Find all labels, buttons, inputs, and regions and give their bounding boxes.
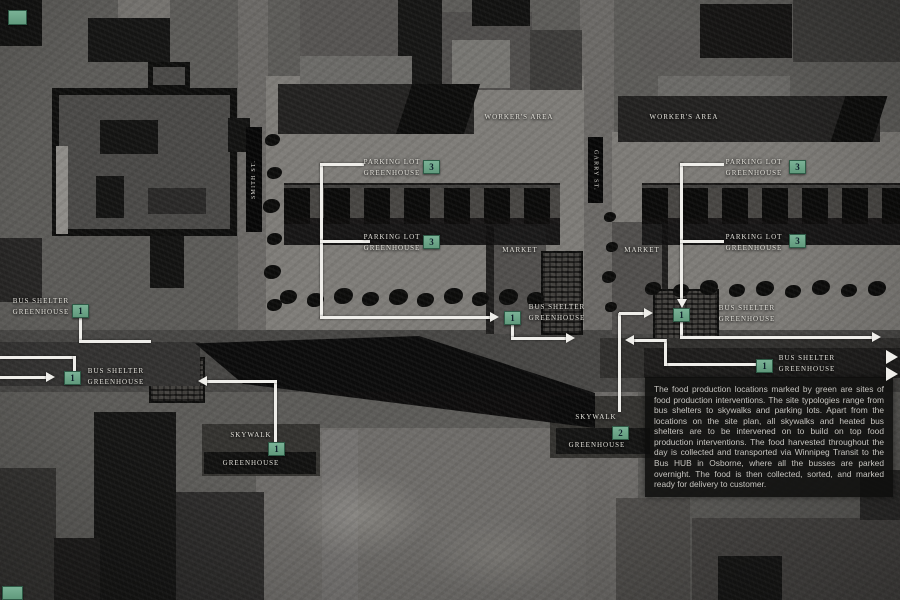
courtyard — [100, 120, 158, 154]
callout-line1: SKYWALK — [230, 430, 271, 441]
garry-street-label: GARRY ST. — [588, 137, 603, 203]
building — [300, 0, 408, 62]
building — [0, 238, 42, 302]
callout-line — [511, 337, 569, 340]
building-courtyard-block — [52, 88, 237, 236]
callout-line2: GREENHOUSE — [13, 307, 70, 318]
callout-line1: PARKING LOT — [364, 157, 421, 168]
badge-bus-shelter-center: 1 — [504, 311, 521, 325]
arrowhead-right — [490, 312, 499, 322]
callout-line2: GREENHOUSE — [726, 168, 783, 179]
callout-line1: BUS SHELTER — [13, 296, 70, 307]
roof-highlight — [452, 40, 510, 88]
callout-skywalk-west-title: SKYWALK — [230, 430, 271, 441]
callout-line1: SKYWALK — [575, 412, 616, 423]
workers-area-label-east: WORKER'S AREA — [650, 112, 719, 123]
callout-line — [664, 339, 667, 366]
callout-line — [680, 163, 683, 299]
badge-bus-shelter-west: 1 — [64, 371, 81, 385]
badge-corner-northwest — [8, 10, 27, 25]
legend-note: The food production locations marked by … — [645, 377, 893, 497]
callout-skywalk-east-title: SKYWALK — [575, 412, 616, 423]
building — [176, 492, 264, 600]
arrowhead-right — [886, 367, 898, 381]
arrowhead-left — [198, 376, 207, 386]
callout-line — [634, 339, 666, 342]
callout-line2: GREENHOUSE — [529, 313, 586, 324]
building — [472, 0, 530, 26]
callout-line — [680, 240, 724, 243]
arrowhead-left — [625, 335, 634, 345]
callout-bus-shelter-southeast: BUS SHELTER GREENHOUSE — [779, 353, 836, 375]
callout-skywalk-west-sub: GREENHOUSE — [223, 458, 280, 469]
courtyard — [148, 188, 206, 214]
badge-skywalk-east: 2 — [612, 426, 629, 440]
callout-bus-shelter-northwest: BUS SHELTER GREENHOUSE — [13, 296, 70, 318]
callout-line — [320, 240, 370, 243]
badge-corner-southwest — [2, 586, 23, 600]
callout-parking-center-south: PARKING LOT GREENHOUSE — [364, 232, 421, 254]
callout-parking-center-north: PARKING LOT GREENHOUSE — [364, 157, 421, 179]
arrowhead-right — [872, 332, 881, 342]
callout-line — [0, 356, 76, 359]
badge-bus-shelter-southeast: 1 — [756, 359, 773, 373]
market-label-center: MARKET — [502, 245, 538, 256]
callout-bus-shelter-garry: BUS SHELTER GREENHOUSE — [719, 303, 776, 325]
callout-line1: BUS SHELTER — [529, 302, 586, 313]
callout-line — [79, 316, 82, 343]
badge-parking-east-north: 3 — [789, 160, 806, 174]
building — [640, 30, 700, 70]
callout-line — [207, 380, 277, 383]
building-tower — [150, 236, 184, 288]
callout-line2: GREENHOUSE — [779, 364, 836, 375]
callout-line2: GREENHOUSE — [364, 243, 421, 254]
callout-line — [79, 340, 151, 343]
plaza-light-patch — [420, 515, 580, 595]
arrowhead-right — [886, 350, 898, 364]
arrowhead-right — [46, 372, 55, 382]
building — [793, 0, 900, 62]
building — [616, 498, 690, 600]
callout-line — [680, 336, 874, 339]
callout-line — [73, 356, 76, 372]
building — [94, 412, 176, 600]
workers-area-label-center: WORKER'S AREA — [485, 112, 554, 123]
arrowhead-right — [644, 308, 653, 318]
smith-street-label: SMITH ST. — [246, 127, 262, 232]
callout-bus-shelter-center: BUS SHELTER GREENHOUSE — [529, 302, 586, 324]
callout-line2: GREENHOUSE — [569, 440, 626, 451]
callout-bus-shelter-west: BUS SHELTER GREENHOUSE — [88, 366, 145, 388]
callout-line — [664, 363, 756, 366]
badge-parking-center-south: 3 — [423, 235, 440, 249]
callout-line — [619, 312, 647, 315]
callout-line2: GREENHOUSE — [88, 377, 145, 388]
badge-bus-shelter-garry: 1 — [673, 308, 690, 322]
callout-line — [0, 376, 48, 379]
callout-line1: PARKING LOT — [726, 157, 783, 168]
arrowhead-right — [566, 333, 575, 343]
callout-line2: GREENHOUSE — [223, 458, 280, 469]
building-annex — [148, 62, 190, 90]
callout-line — [680, 163, 724, 166]
building — [700, 4, 792, 58]
plaza-light-patch — [290, 470, 430, 560]
courtyard — [96, 176, 124, 218]
callout-parking-east-south: PARKING LOT GREENHOUSE — [726, 232, 783, 254]
arrowhead-down — [677, 299, 687, 308]
building — [0, 468, 56, 600]
roof-highlight — [56, 146, 68, 234]
callout-parking-east-north: PARKING LOT GREENHOUSE — [726, 157, 783, 179]
callout-line1: PARKING LOT — [364, 232, 421, 243]
market-label-east: MARKET — [624, 245, 660, 256]
callout-line2: GREENHOUSE — [364, 168, 421, 179]
callout-line1: BUS SHELTER — [779, 353, 836, 364]
callout-line1: BUS SHELTER — [719, 303, 776, 314]
callout-line — [618, 313, 621, 412]
badge-parking-east-south: 3 — [789, 234, 806, 248]
badge-skywalk-west: 1 — [268, 442, 285, 456]
roof-highlight — [300, 56, 412, 86]
building — [54, 538, 100, 600]
building — [530, 30, 582, 90]
site-plan-map: SMITH ST. GARRY ST. WORKER'S AREA WORKER… — [0, 0, 900, 600]
building — [88, 18, 170, 62]
badge-bus-shelter-northwest: 1 — [72, 304, 89, 318]
callout-line2: GREENHOUSE — [719, 314, 776, 325]
callout-line2: GREENHOUSE — [726, 243, 783, 254]
callout-line — [274, 380, 277, 443]
callout-skywalk-east-sub: GREENHOUSE — [569, 440, 626, 451]
badge-parking-center-north: 3 — [423, 160, 440, 174]
callout-line1: PARKING LOT — [726, 232, 783, 243]
callout-line — [320, 316, 492, 319]
building — [718, 556, 782, 600]
callout-line1: BUS SHELTER — [88, 366, 145, 377]
callout-line — [320, 163, 364, 166]
